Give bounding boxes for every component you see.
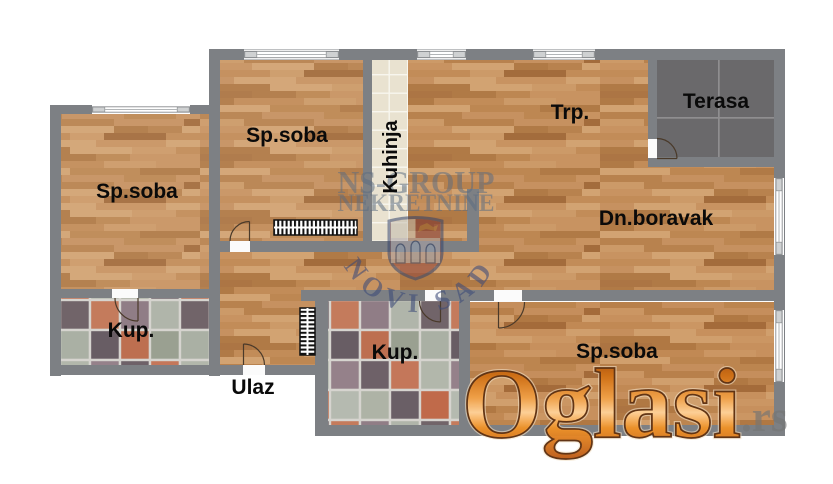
svg-text:NEKRETNINE: NEKRETNINE xyxy=(338,190,495,217)
svg-text:Terasa: Terasa xyxy=(683,90,749,113)
svg-text:Kup.: Kup. xyxy=(108,319,155,342)
svg-text:Sp.soba: Sp.soba xyxy=(96,180,178,203)
svg-text:Trp.: Trp. xyxy=(551,101,590,124)
svg-text:Kuhinja: Kuhinja xyxy=(380,119,402,193)
svg-text:Ulaz: Ulaz xyxy=(231,376,274,399)
svg-text:Sp.soba: Sp.soba xyxy=(246,124,328,147)
svg-text:.rs: .rs xyxy=(741,394,788,441)
svg-text:Oglasi: Oglasi xyxy=(462,348,741,459)
svg-text:Dn.boravak: Dn.boravak xyxy=(599,207,714,230)
svg-text:Kup.: Kup. xyxy=(372,341,419,364)
